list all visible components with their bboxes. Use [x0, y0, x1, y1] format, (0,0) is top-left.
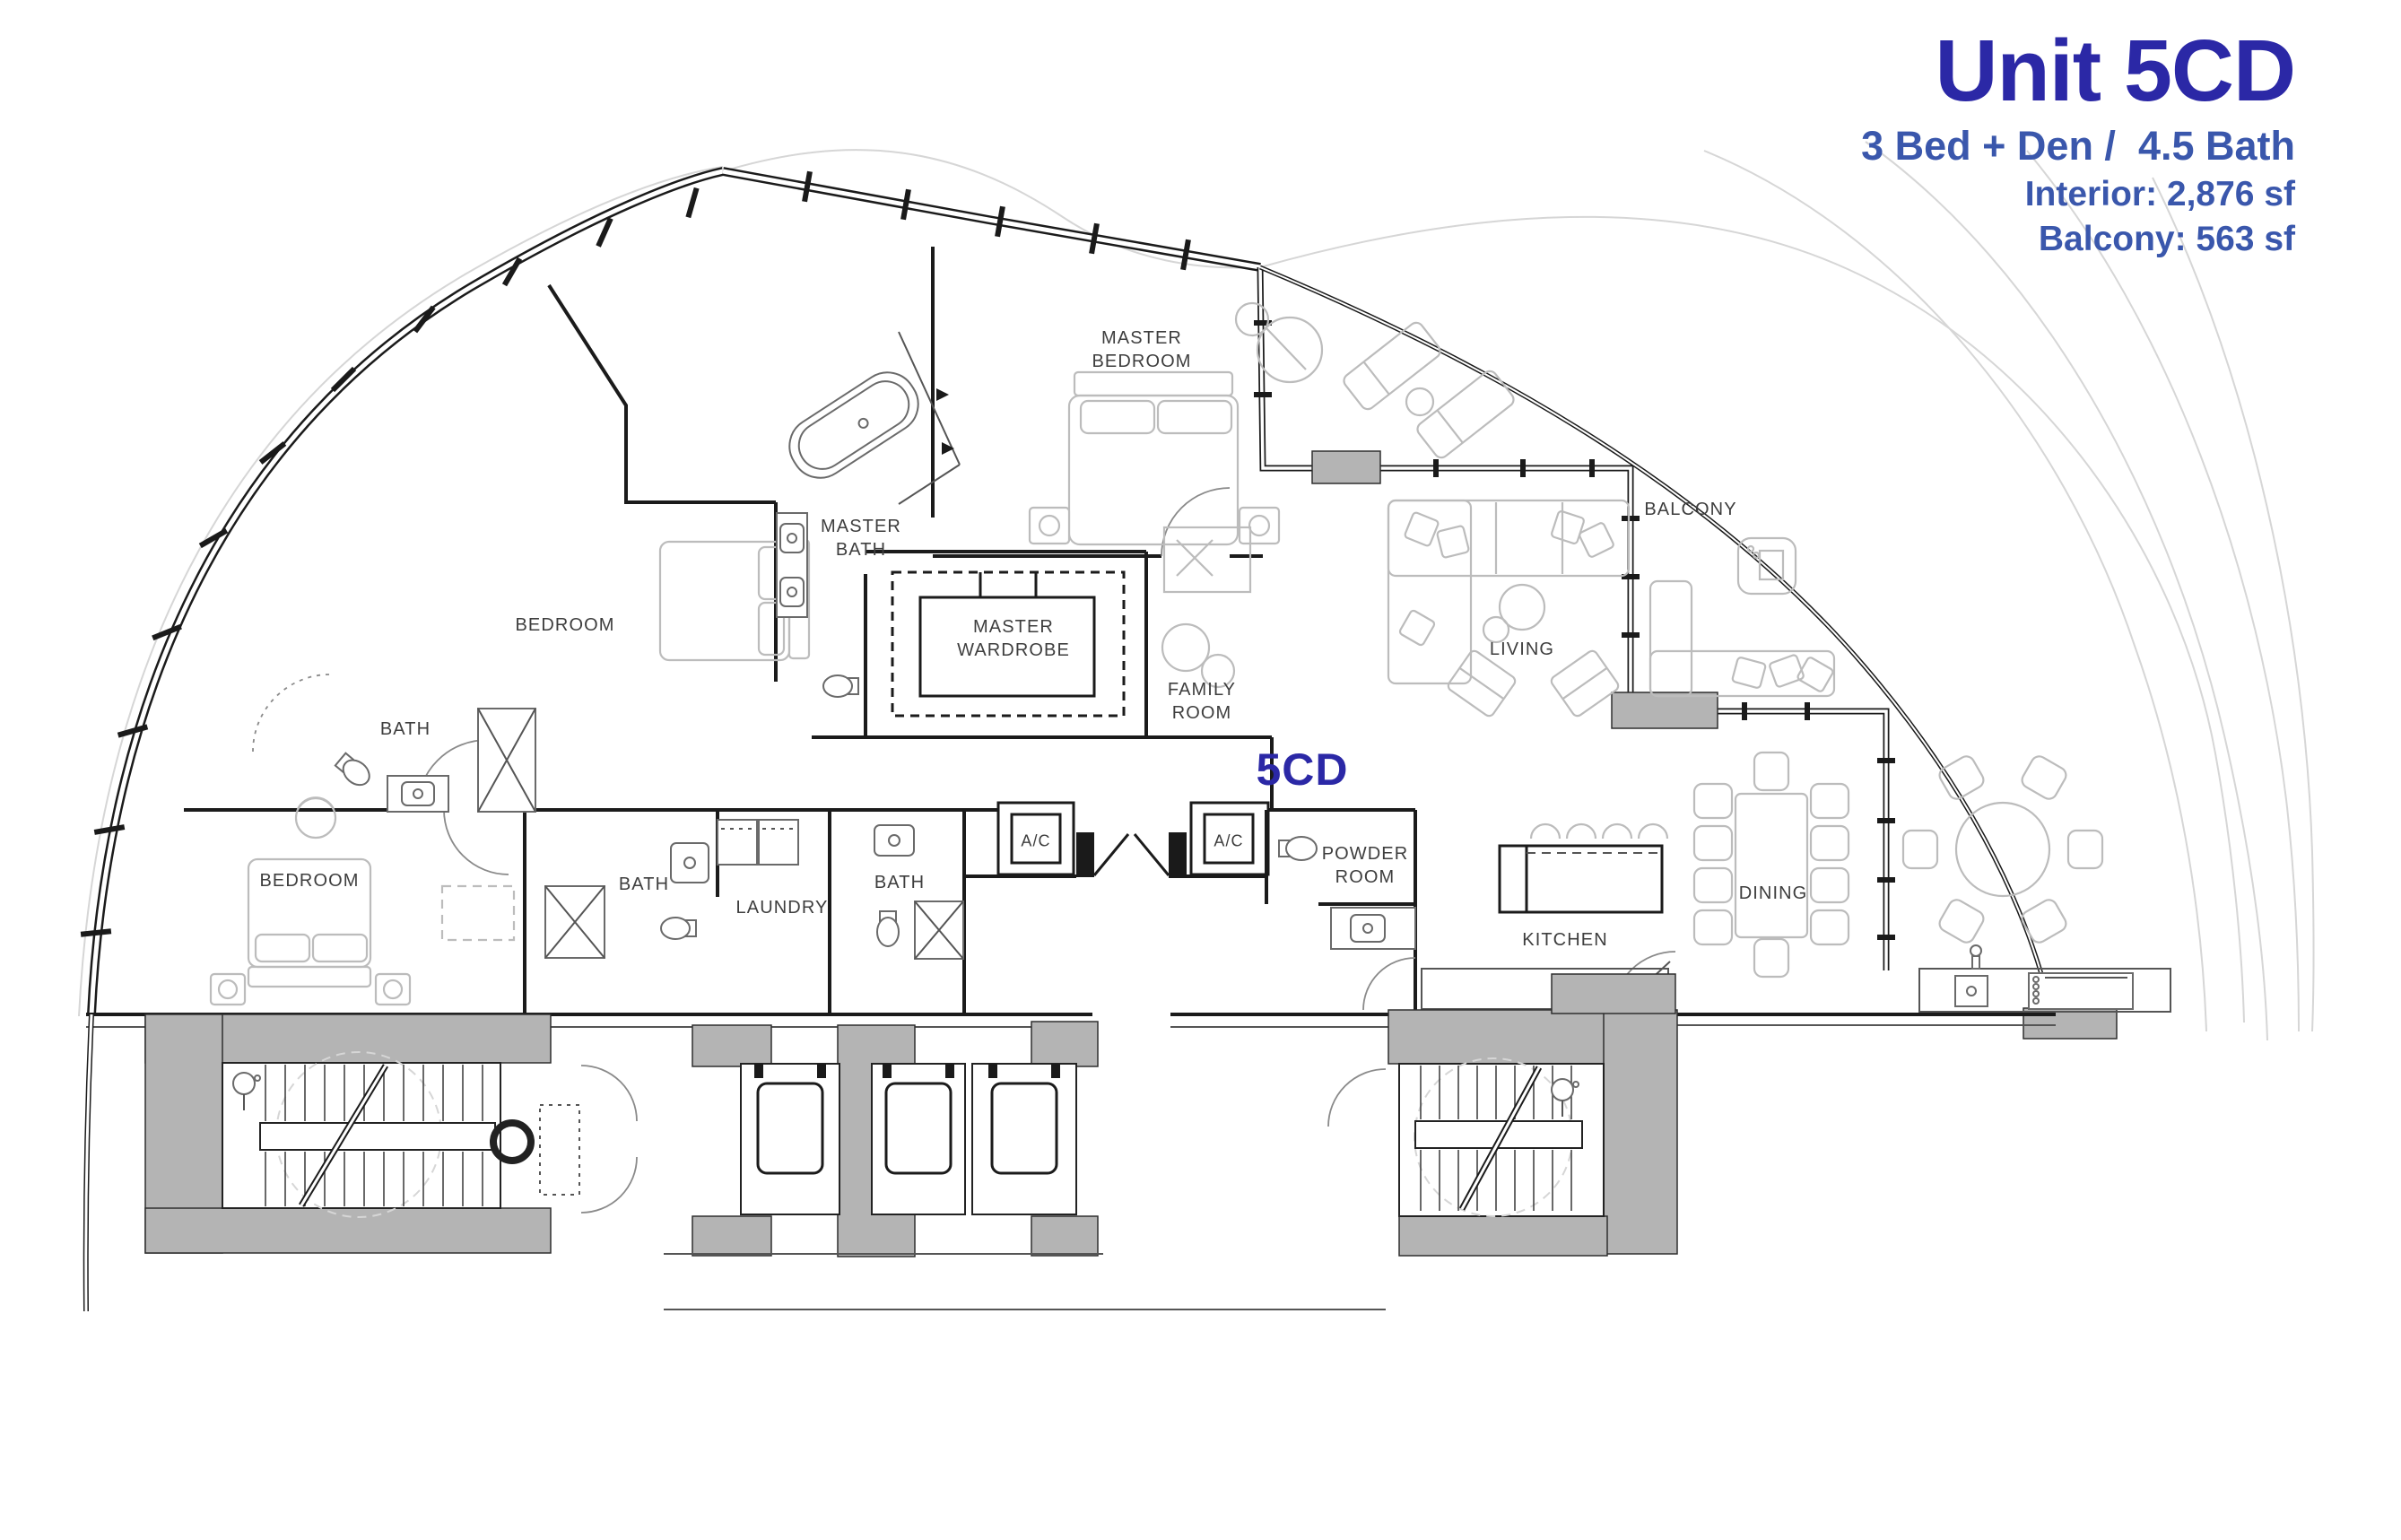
unit-config: 3 Bed + Den / 4.5 Bath	[1861, 123, 2295, 170]
elevator-bank	[664, 1022, 1386, 1309]
label-kitchen: KITCHEN	[1522, 928, 1607, 952]
dining-furniture	[1694, 753, 1849, 977]
label-bedroom-upper: BEDROOM	[515, 613, 614, 637]
bath-upper-fixtures	[334, 709, 535, 812]
window-mullions	[81, 171, 1191, 937]
core	[145, 974, 1677, 1309]
label-bedroom-lower: BEDROOM	[259, 869, 359, 892]
label-living: LIVING	[1490, 638, 1554, 661]
label-powder-room: POWDER ROOM	[1322, 842, 1409, 889]
label-master-bath: MASTER BATH	[821, 515, 901, 561]
exterior-wall	[81, 171, 1260, 1014]
vestibule	[493, 1066, 637, 1213]
label-master-wardrobe: MASTER WARDROBE	[957, 615, 1070, 662]
label-balcony: BALCONY	[1644, 498, 1736, 521]
balcony-area: Balcony: 563 sf	[1861, 220, 2295, 259]
label-bath-upper: BATH	[380, 718, 431, 741]
balcony-furniture	[1341, 320, 2170, 1012]
title-block: Unit 5CD 3 Bed + Den / 4.5 Bath Interior…	[1861, 27, 2295, 259]
laundry-fixtures	[718, 820, 798, 865]
bedroom-lower-furniture	[211, 797, 514, 1005]
stairwell-right	[1328, 974, 1677, 1256]
floor-plan-page: Unit 5CD 3 Bed + Den / 4.5 Bath Interior…	[0, 0, 2401, 1540]
label-bath-mid-left: BATH	[619, 873, 669, 896]
label-bath-mid-right: BATH	[874, 871, 925, 894]
label-master-bedroom: MASTER BEDROOM	[1092, 326, 1191, 373]
label-ac-closet-2: A/C	[1214, 831, 1243, 851]
label-ac-closet-1: A/C	[1021, 831, 1050, 851]
unit-label-5cd: 5CD	[1256, 744, 1348, 796]
family-room-furniture	[1162, 527, 1250, 687]
label-laundry: LAUNDRY	[736, 896, 829, 919]
stairwell-left	[145, 1014, 551, 1253]
bath-mid-left-fixtures	[545, 843, 709, 958]
label-dining: DINING	[1739, 882, 1808, 905]
living-furniture	[1388, 500, 1629, 718]
interior-area: Interior: 2,876 sf	[1861, 175, 2295, 214]
unit-title: Unit 5CD	[1861, 27, 2295, 116]
label-family-room: FAMILY ROOM	[1168, 678, 1236, 725]
